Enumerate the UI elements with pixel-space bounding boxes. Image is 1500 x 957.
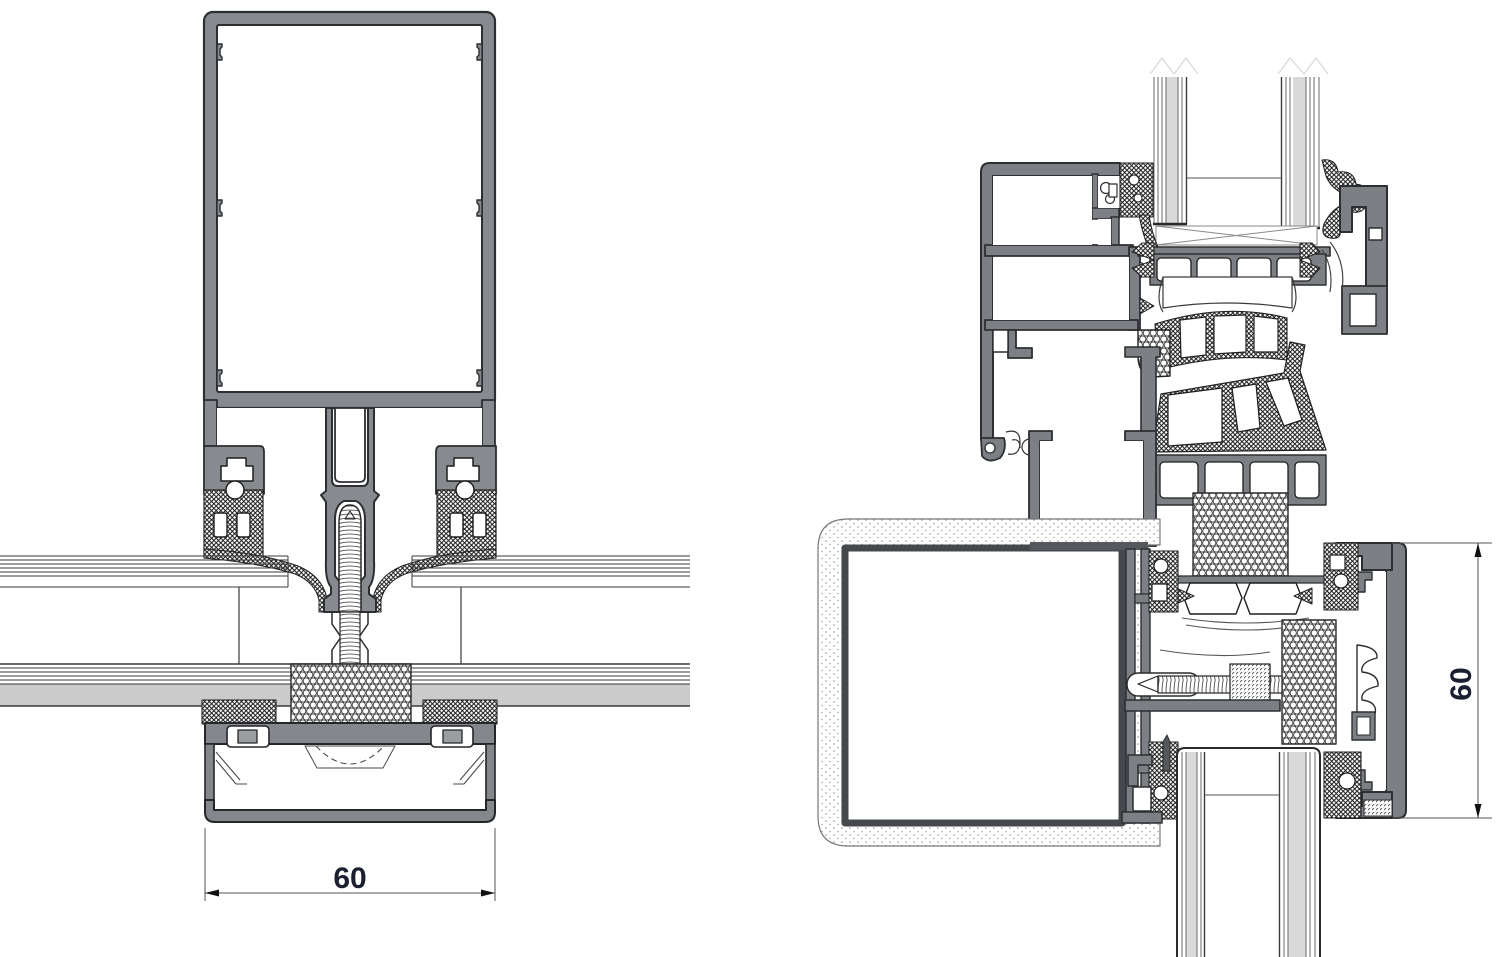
svg-text:60: 60 [333,862,366,895]
svg-text:60: 60 [1445,667,1478,700]
